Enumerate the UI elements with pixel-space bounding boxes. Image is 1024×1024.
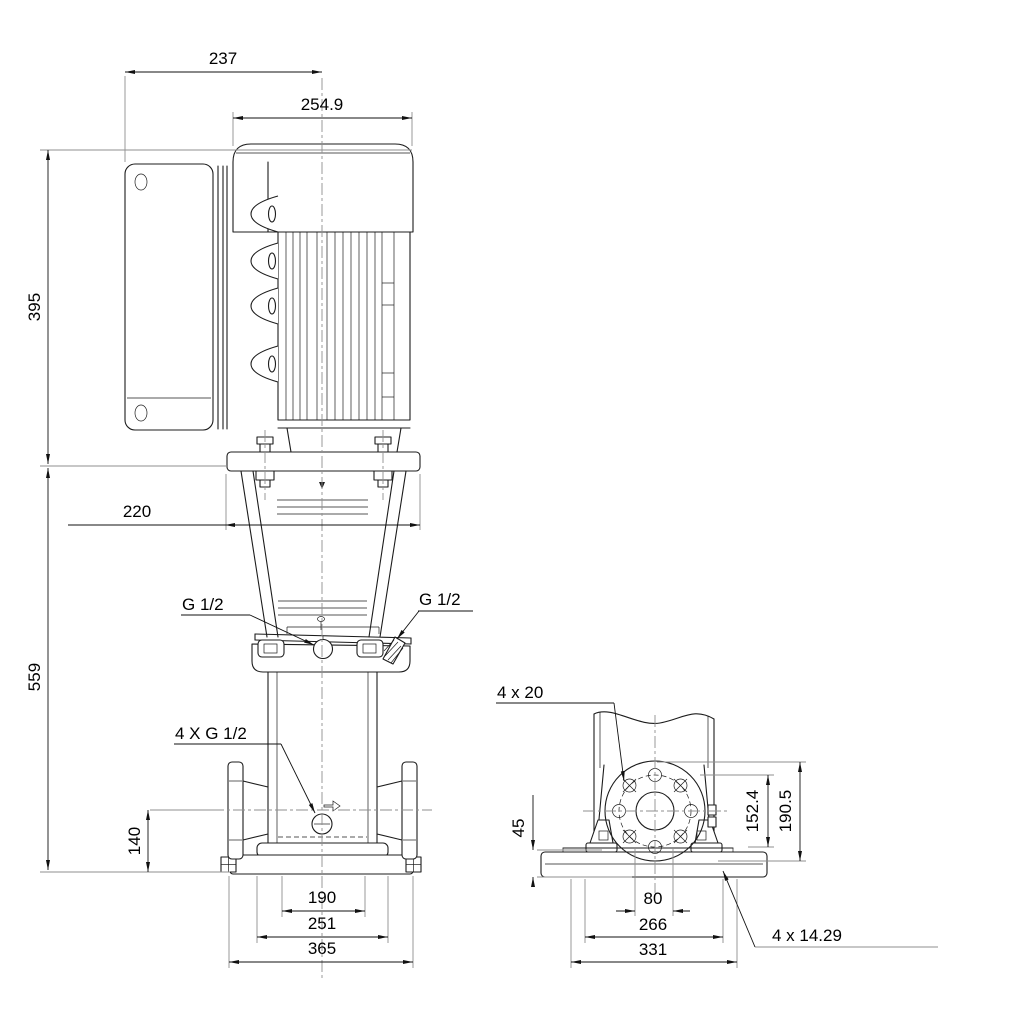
side-column [594,712,714,845]
dim-bolt-hole-spacing: 80 [644,889,663,908]
dim-base-depth-mid: 266 [639,915,667,934]
dim-base-width-inner: 190 [308,888,336,907]
flow-arrow-icon [324,801,340,811]
dim-base-depth-outer: 331 [639,940,667,959]
pump-head [252,627,411,672]
dim-coupling-width: 220 [123,502,151,521]
dim-base-height: 45 [509,819,528,838]
dim-base-width-mid: 251 [308,914,336,933]
dim-motor-width: 254.9 [301,95,344,114]
front-view [125,144,421,874]
dim-port-centerline-height: 140 [125,827,144,855]
dim-motor-height: 395 [25,293,44,321]
label-plug-ports: 4 X G 1/2 [175,724,247,743]
technical-drawing-canvas: 237 254.9 395 220 559 140 190 251 365 G … [0,0,1024,1024]
dim-base-width-outer: 365 [308,939,336,958]
guard-slots [277,500,368,615]
label-gauge-port-right: G 1/2 [419,590,461,609]
head-bolt-tab [258,640,284,657]
break-line [594,712,714,724]
guard-screw [318,617,325,622]
label-base-bolt-holes: 4 x 14.29 [772,926,842,945]
dim-width-top: 237 [209,49,237,68]
base-side [541,848,767,877]
drain-plug [312,801,340,834]
gauge-port-left [314,640,333,659]
dim-bolt-circle-diameter: 152.4 [743,790,762,833]
pump-dimension-drawing: 237 254.9 395 220 559 140 190 251 365 G … [0,0,1024,1024]
label-gauge-port-left: G 1/2 [182,595,224,614]
label-flange-bolt-holes: 4 x 20 [497,683,543,702]
base-front [221,843,421,874]
side-view [541,712,767,877]
dim-pump-height: 559 [25,663,44,691]
head-bolt-tab [357,640,383,657]
motor-stool [227,437,420,637]
dim-flange-diameter: 190.5 [776,790,795,833]
